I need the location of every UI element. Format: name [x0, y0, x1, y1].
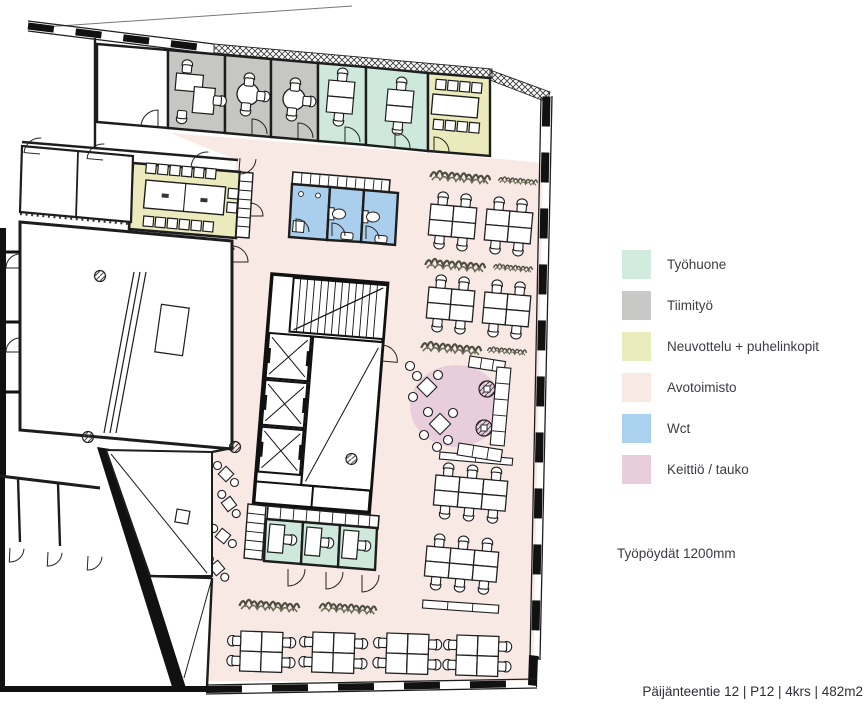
wc-block [289, 172, 398, 245]
legend: Työhuone Tiimityö Neuvottelu + puhelinko… [622, 250, 819, 496]
legend-swatch-neuvottelu [622, 332, 651, 361]
legend-label-tyohuone: Työhuone [667, 257, 726, 272]
legend-label-tiimityo: Tiimityö [667, 298, 713, 313]
legend-item-tiimityo: Tiimityö [622, 291, 819, 320]
legend-item-keittio: Keittiö / tauko [622, 455, 819, 484]
legend-item-avotoimisto: Avotoimisto [622, 373, 819, 402]
legend-swatch-tyohuone [622, 250, 651, 279]
legend-swatch-keittio [622, 455, 651, 484]
address-footer: Päijänteentie 12 | P12 | 4krs | 482m2 [642, 684, 863, 699]
legend-item-neuvottelu: Neuvottelu + puhelinkopit [622, 332, 819, 361]
legend-item-tyohuone: Työhuone [622, 250, 819, 279]
legend-label-neuvottelu: Neuvottelu + puhelinkopit [667, 339, 819, 354]
legend-label-keittio: Keittiö / tauko [667, 462, 749, 477]
legend-item-wct: Wct [622, 414, 819, 443]
floorplan-page: Työhuone Tiimityö Neuvottelu + puhelinko… [0, 0, 866, 715]
legend-swatch-tiimityo [622, 291, 651, 320]
desks-note: Työpöydät 1200mm [617, 546, 736, 561]
legend-swatch-wct [622, 414, 651, 443]
legend-label-wct: Wct [667, 421, 690, 436]
legend-label-avotoimisto: Avotoimisto [667, 380, 737, 395]
legend-swatch-avotoimisto [622, 373, 651, 402]
